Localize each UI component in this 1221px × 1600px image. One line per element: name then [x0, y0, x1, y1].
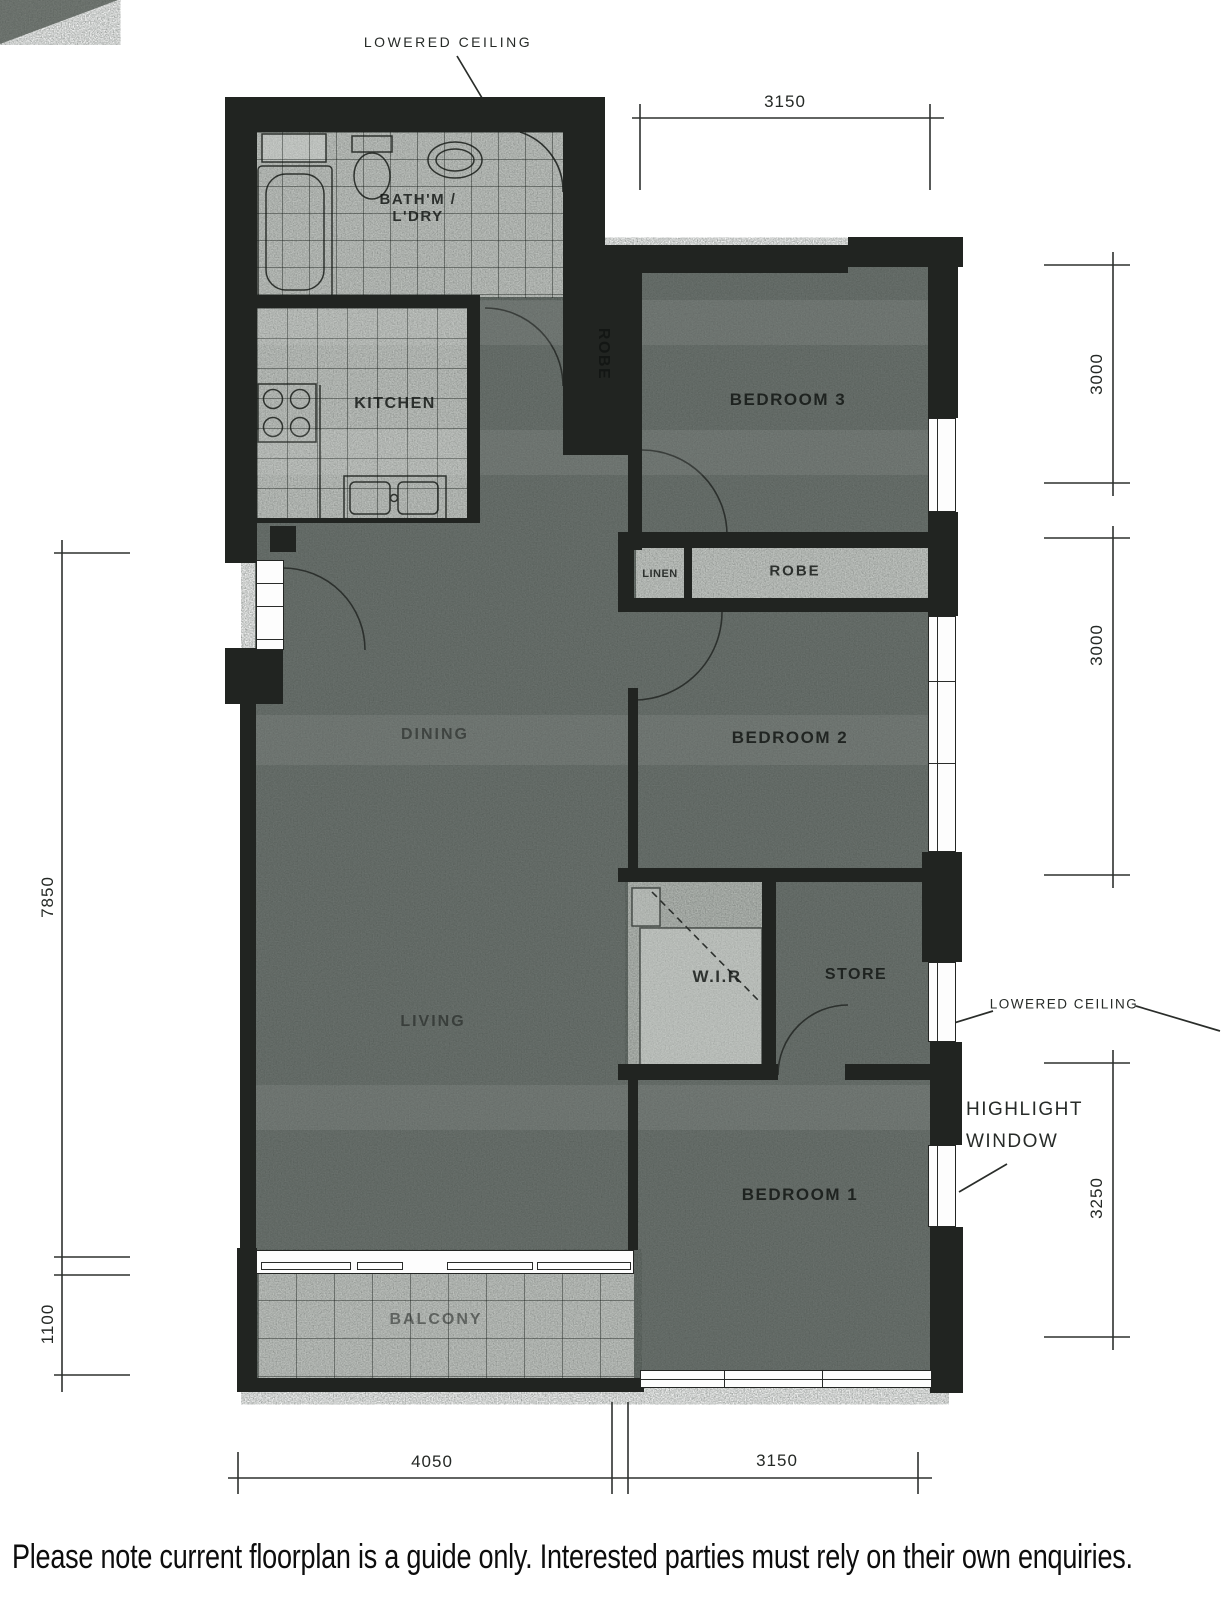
window-pane-line [937, 419, 938, 511]
room-label-dining: DINING [401, 726, 469, 744]
wall-segment [237, 1248, 257, 1392]
wall-segment [270, 526, 296, 552]
wall-segment [762, 882, 776, 1076]
lowered-ceiling-top-label: LOWERED CEILING [364, 34, 532, 50]
wall-segment [930, 1227, 963, 1393]
wall-segment [922, 852, 962, 962]
room-label-wir: W.I.R [692, 967, 741, 987]
wall-segment [628, 267, 642, 550]
bath-label-line1: BATH'M / [380, 191, 457, 208]
room-label-bath: BATH'M / L'DRY [380, 191, 457, 225]
dimension-left-balcony: 1100 [38, 1304, 58, 1345]
bedroom2-window [928, 616, 956, 852]
floorplan-drawing [0, 0, 1221, 1600]
dimension-right-bed1: 3250 [1087, 1177, 1107, 1219]
lowered-ceiling-right-leader-right [1136, 1006, 1220, 1031]
room-label-robe-vertical: ROBE [594, 328, 612, 380]
wall-segment [618, 532, 940, 548]
wall-segment [928, 267, 958, 418]
lowered-ceiling-right-label: LOWERED CEILING [990, 997, 1139, 1012]
highlight-window-label: HIGHLIGHT WINDOW [966, 1094, 1083, 1158]
wall-segment [225, 97, 605, 132]
door-panel [447, 1262, 533, 1270]
room-label-balcony: BALCONY [389, 1311, 482, 1329]
dimension-right-bed2: 3000 [1087, 624, 1107, 666]
scan-artifact-corner [0, 0, 118, 44]
wall-segment [225, 648, 283, 704]
room-label-bedroom3: BEDROOM 3 [730, 390, 846, 410]
dimension-bottom-right: 3150 [756, 1451, 798, 1471]
window-transom [929, 681, 955, 682]
wall-segment [467, 308, 480, 520]
store-window [928, 962, 956, 1042]
window-pane-line [937, 617, 938, 851]
bath-label-line2: L'DRY [380, 208, 457, 225]
floorplan-page: BATH'M / L'DRY KITCHEN ROBE BEDROOM 3 LI… [0, 0, 1221, 1600]
window-pane-line [937, 963, 938, 1041]
wir-shelf [632, 888, 660, 926]
dimension-left-main: 7850 [38, 876, 58, 918]
window-pane-line [937, 1146, 938, 1226]
wir-floor [640, 928, 762, 1066]
room-label-living: LIVING [400, 1013, 465, 1031]
entry-door-opening [256, 560, 284, 650]
wall-segment [618, 598, 940, 612]
door-jamb-line [257, 639, 283, 640]
wall-segment [618, 1064, 778, 1080]
room-label-bedroom2: BEDROOM 2 [732, 728, 848, 748]
highlight-window-label-line1: HIGHLIGHT [966, 1094, 1083, 1126]
wall-segment [928, 512, 958, 616]
dimension-top-width: 3150 [764, 92, 806, 112]
wall-segment [628, 688, 638, 872]
wall-segment [628, 1080, 638, 1250]
dimension-bottom-left: 4050 [411, 1452, 453, 1472]
wall-segment [848, 237, 963, 267]
door-panel [357, 1262, 403, 1270]
wall-segment [684, 546, 692, 600]
balcony-sliding-door [256, 1250, 634, 1274]
room-label-kitchen: KITCHEN [354, 395, 436, 413]
bedroom1-window [640, 1370, 932, 1388]
window-pane-line [641, 1379, 931, 1380]
room-label-store: STORE [825, 966, 887, 984]
room-label-bedroom1: BEDROOM 1 [742, 1185, 858, 1205]
room-label-robe-horizontal: ROBE [769, 563, 820, 580]
wall-segment [845, 1064, 940, 1080]
dimension-right-bed3: 3000 [1087, 353, 1107, 395]
door-jamb-line [257, 606, 283, 607]
wall-segment [240, 702, 256, 1252]
wall-segment [255, 518, 480, 523]
window-transom [929, 763, 955, 764]
wall-segment [930, 1042, 962, 1145]
wall-segment [618, 868, 940, 882]
door-panel [261, 1262, 351, 1270]
room-label-linen: LINEN [642, 568, 678, 580]
wall-segment [255, 295, 480, 308]
door-panel [537, 1262, 631, 1270]
bedroom3-window [928, 418, 956, 512]
wall-segment [237, 1378, 644, 1392]
bath-cabinet [262, 134, 326, 162]
wall-segment [225, 97, 257, 563]
highlight-window-label-line2: WINDOW [966, 1126, 1083, 1158]
window-mullion [822, 1371, 823, 1387]
wall-segment [618, 532, 634, 612]
highlight-window-leader [959, 1164, 1007, 1192]
door-jamb-line [257, 583, 283, 584]
highlight-window [928, 1145, 956, 1227]
window-mullion [724, 1371, 725, 1387]
disclaimer-text: Please note current floorplan is a guide… [12, 1538, 1220, 1577]
